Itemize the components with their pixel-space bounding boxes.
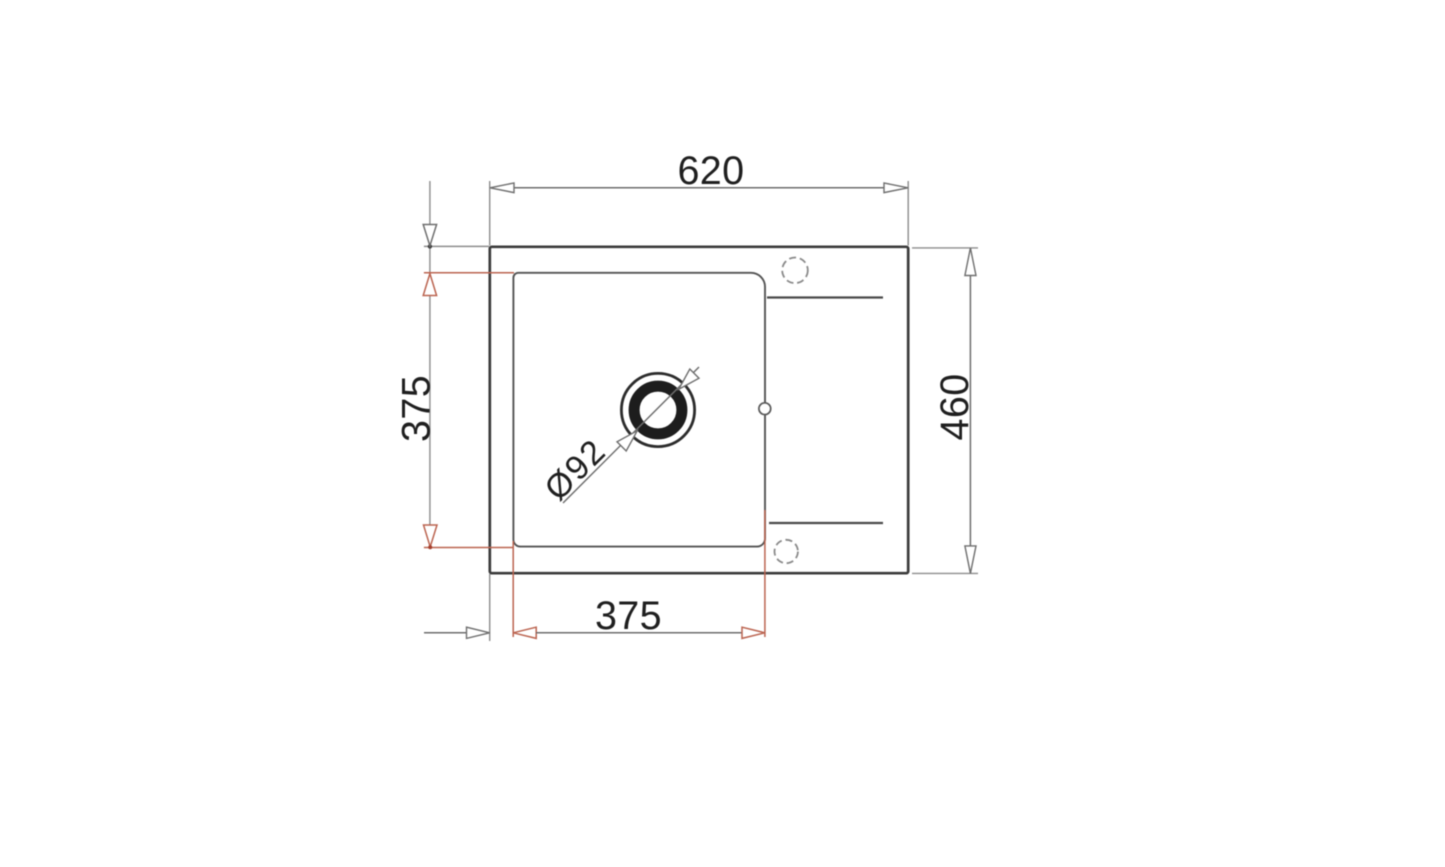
svg-text:375: 375 — [595, 594, 662, 638]
svg-text:375: 375 — [395, 375, 439, 442]
svg-text:620: 620 — [677, 149, 744, 193]
svg-text:460: 460 — [933, 373, 977, 440]
